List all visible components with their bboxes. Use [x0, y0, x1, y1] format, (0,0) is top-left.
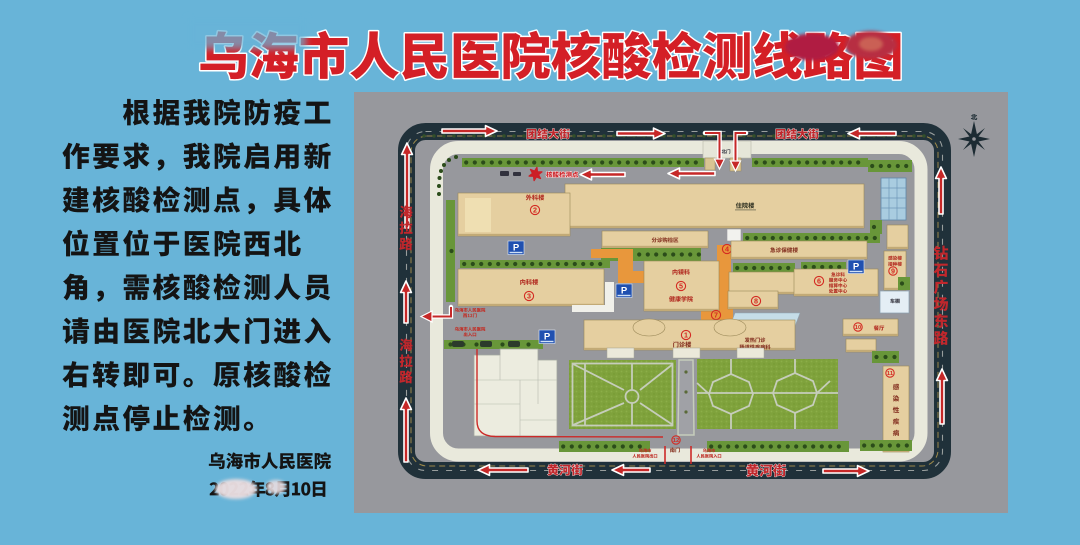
svg-text:6: 6 [817, 277, 821, 286]
svg-text:P: P [853, 261, 860, 272]
svg-text:8: 8 [754, 297, 758, 306]
svg-text:P: P [544, 331, 551, 342]
svg-text:5: 5 [679, 282, 683, 291]
svg-text:2: 2 [533, 206, 537, 215]
svg-text:10: 10 [855, 325, 861, 331]
svg-text:P: P [513, 242, 520, 253]
svg-text:11: 11 [887, 371, 894, 377]
svg-text:12: 12 [673, 438, 679, 444]
svg-text:3: 3 [527, 292, 531, 301]
svg-text:7: 7 [714, 311, 718, 320]
svg-text:1: 1 [684, 331, 688, 340]
svg-text:P: P [621, 285, 628, 296]
svg-text:4: 4 [725, 245, 729, 254]
svg-text:9: 9 [891, 267, 895, 276]
